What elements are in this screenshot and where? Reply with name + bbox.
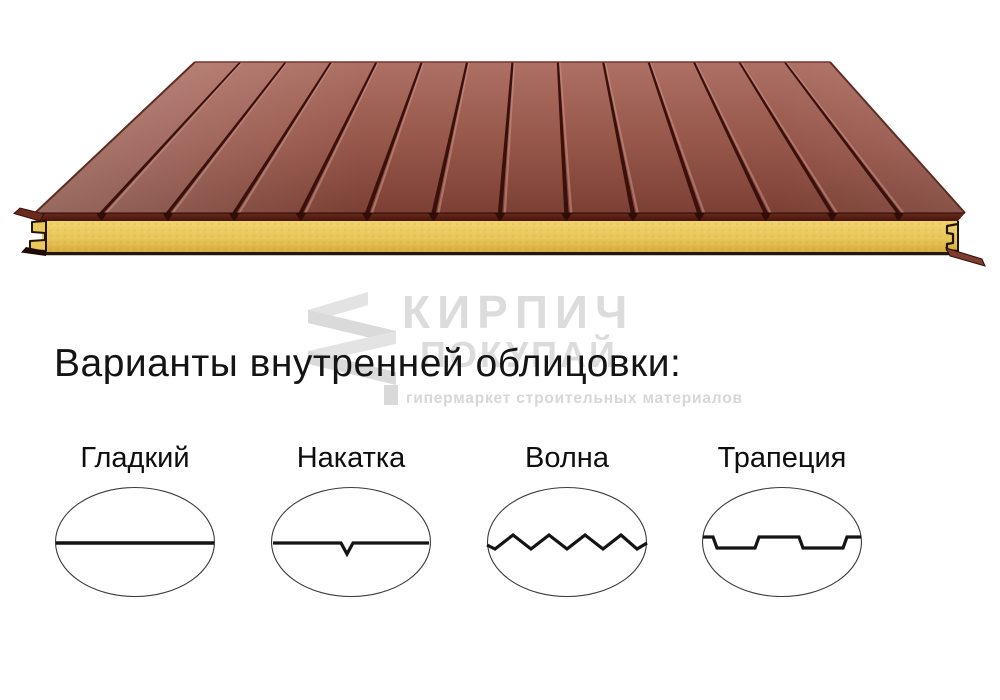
profile-line bbox=[273, 543, 429, 554]
option-label: Накатка bbox=[263, 441, 439, 476]
profile-diagram-wave bbox=[485, 485, 649, 599]
cladding-option-knurled: Накатка bbox=[263, 441, 439, 604]
profile-ellipse bbox=[488, 487, 647, 596]
profile-diagram-knurled bbox=[269, 485, 433, 599]
panel-top-facing bbox=[35, 62, 965, 213]
option-label: Гладкий bbox=[47, 441, 223, 476]
cladding-option-trapezoid: Трапеция bbox=[694, 441, 870, 604]
profile-line bbox=[487, 535, 647, 549]
option-label: Трапеция bbox=[694, 441, 870, 476]
cladding-option-smooth: Гладкий bbox=[47, 441, 223, 604]
profile-line bbox=[703, 537, 861, 548]
panel-bottom-line bbox=[42, 252, 958, 255]
panel-core bbox=[42, 221, 958, 255]
option-label: Волна bbox=[479, 441, 655, 476]
panel-left-joint bbox=[14, 208, 46, 256]
cladding-option-wave: Волна bbox=[479, 441, 655, 604]
panel-front-edge bbox=[35, 213, 965, 222]
panel-svg bbox=[0, 0, 1000, 330]
brand-tagline: гипермаркет строительных материалов bbox=[406, 391, 743, 407]
profile-diagram-trapezoid bbox=[700, 485, 864, 599]
product-panel-render bbox=[0, 0, 1000, 330]
section-heading: Варианты внутренней облицовки: bbox=[54, 342, 681, 387]
profile-ellipse bbox=[703, 487, 862, 596]
profile-diagram-smooth bbox=[53, 485, 217, 599]
